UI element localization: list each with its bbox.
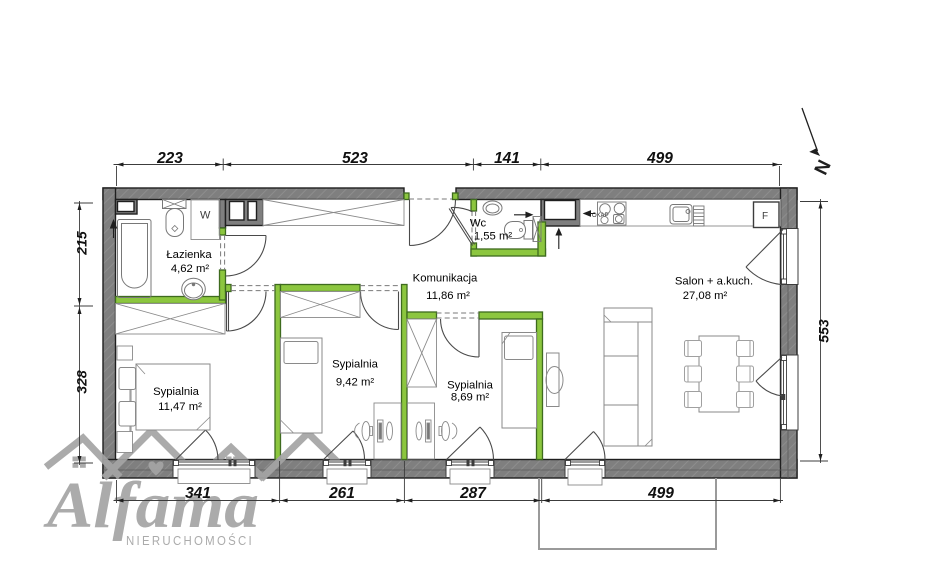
svg-text:553: 553 [816, 319, 832, 343]
svg-text:8,69 m²: 8,69 m² [451, 392, 490, 404]
svg-text:Wc: Wc [470, 218, 487, 230]
svg-text:4,62 m²: 4,62 m² [171, 263, 210, 275]
svg-text:328: 328 [74, 370, 90, 394]
svg-text:11,47 m²: 11,47 m² [158, 401, 202, 413]
svg-text:Sypialnia: Sypialnia [332, 359, 379, 371]
svg-text:341: 341 [185, 485, 211, 502]
svg-text:499: 499 [647, 485, 674, 502]
svg-text:11,86 m²: 11,86 m² [426, 290, 470, 302]
svg-text:1,55 m²: 1,55 m² [474, 231, 513, 243]
svg-text:223: 223 [156, 150, 183, 167]
svg-text:499: 499 [646, 150, 673, 167]
svg-text:287: 287 [459, 485, 487, 502]
svg-text:Salon + a.kuch.: Salon + a.kuch. [675, 276, 753, 288]
svg-text:523: 523 [342, 150, 368, 167]
svg-text:9,42 m²: 9,42 m² [336, 377, 375, 389]
svg-text:141: 141 [494, 150, 520, 167]
svg-text:W: W [200, 210, 211, 222]
svg-text:NIERUCHOMOŚCI: NIERUCHOMOŚCI [126, 533, 254, 548]
svg-text:Łazienka: Łazienka [166, 249, 212, 261]
svg-text:215: 215 [74, 231, 90, 256]
svg-text:27,08 m²: 27,08 m² [683, 290, 728, 302]
svg-text:Komunikacja: Komunikacja [413, 273, 478, 285]
svg-text:Sypialnia: Sypialnia [153, 386, 200, 398]
svg-text:Sypialnia: Sypialnia [447, 380, 494, 392]
svg-text:261: 261 [328, 485, 355, 502]
svg-text:F: F [762, 211, 768, 222]
